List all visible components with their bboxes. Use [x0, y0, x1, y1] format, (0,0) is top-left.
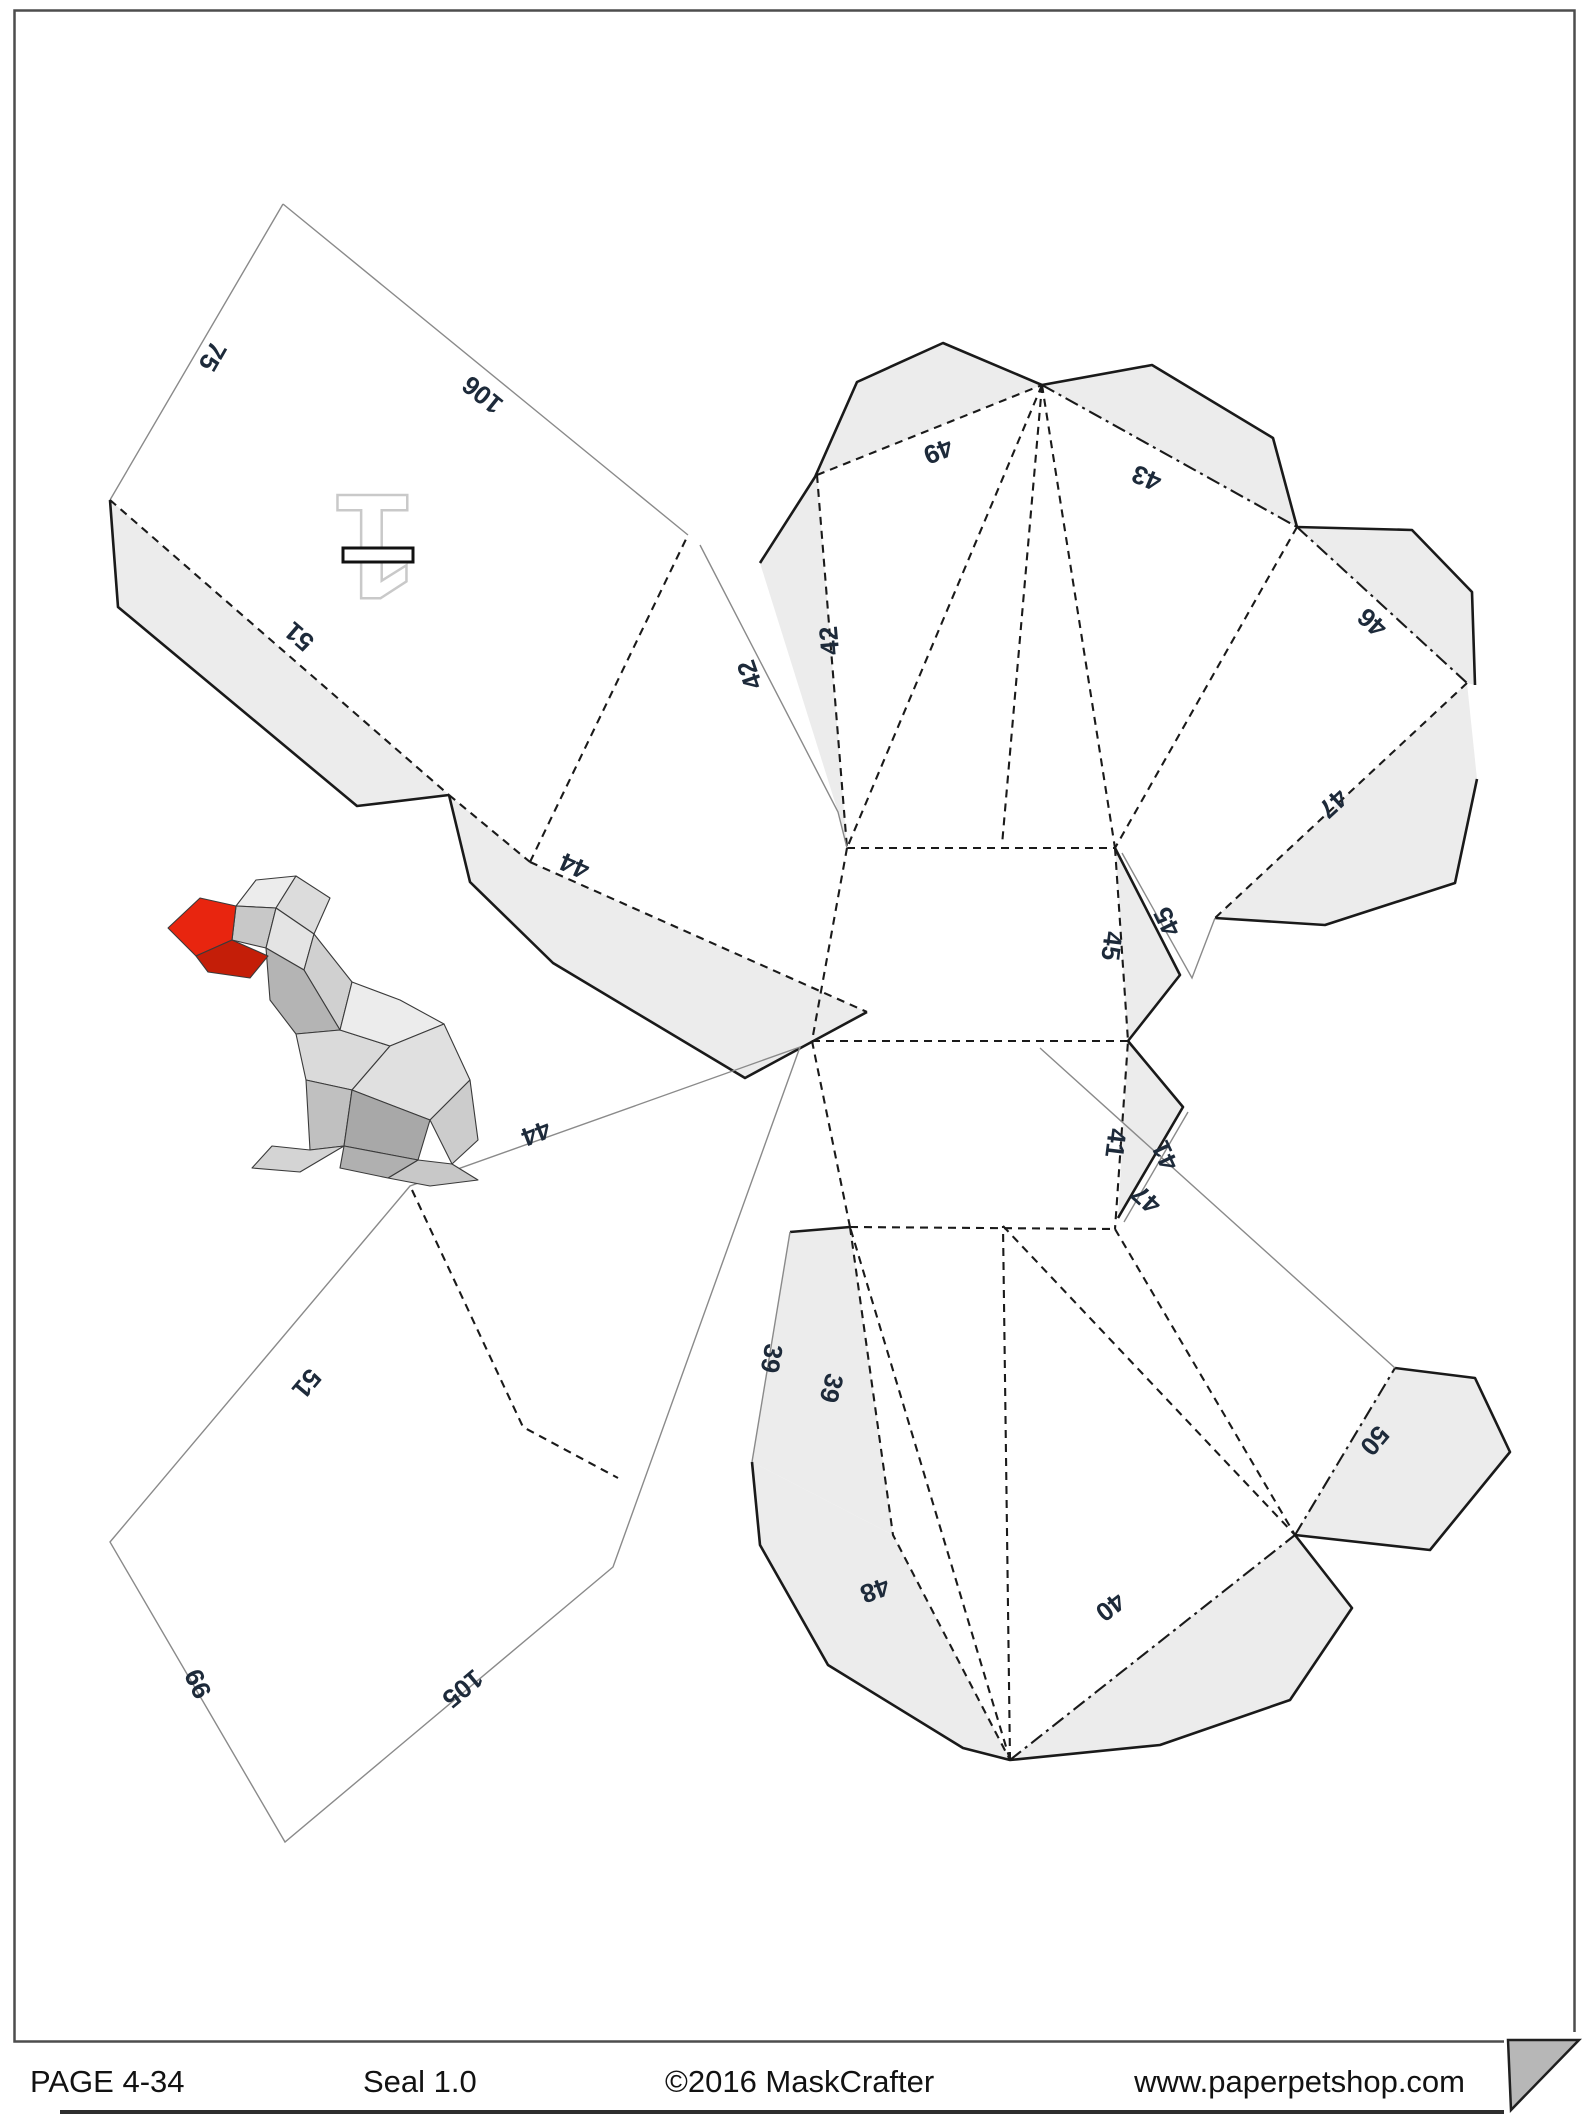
footer-model-name: Seal 1.0	[363, 2064, 477, 2099]
glue-flap	[1010, 1535, 1352, 1760]
fold-line	[812, 848, 1128, 1229]
fold-line	[812, 848, 1128, 1229]
edge-number-44: 44	[517, 1114, 555, 1153]
part-number-underline	[343, 548, 413, 562]
footer-page-number: PAGE 4-34	[30, 2064, 185, 2099]
edge-number-40: 40	[1090, 1586, 1131, 1627]
footer-copyright: ©2016 MaskCrafter	[665, 2064, 934, 2099]
edge-number-43: 43	[1127, 459, 1165, 498]
edge-number-45: 45	[1095, 930, 1128, 962]
edge-number-51: 51	[286, 1363, 328, 1404]
template-page: 1	[0, 0, 1588, 2116]
edge-number-39: 39	[755, 1342, 790, 1376]
footer-website-link[interactable]: www.paperpetshop.com	[1133, 2064, 1465, 2099]
edge-number-105: 105	[437, 1663, 490, 1714]
folded-corner	[1504, 2032, 1588, 2116]
edge-number-42: 42	[813, 625, 845, 656]
piece-body-pattern	[700, 343, 1510, 1760]
fold-line	[847, 385, 1115, 848]
edge-number-42: 42	[731, 656, 769, 693]
edge-number-49: 49	[919, 432, 957, 471]
seal-model-preview	[168, 876, 478, 1186]
glue-flap	[1042, 365, 1297, 527]
edge-number-106: 106	[456, 370, 509, 421]
edge-number-75: 75	[193, 336, 233, 376]
footer: PAGE 4-34 Seal 1.0 ©2016 MaskCrafter www…	[30, 2064, 1465, 2099]
glue-flap	[1295, 1368, 1510, 1550]
glue-flap	[760, 475, 847, 848]
glue-flap	[449, 795, 867, 1078]
fold-line	[412, 1190, 618, 1478]
edge-number-41: 41	[1099, 1127, 1132, 1159]
page-canvas: 1	[0, 0, 1588, 2116]
